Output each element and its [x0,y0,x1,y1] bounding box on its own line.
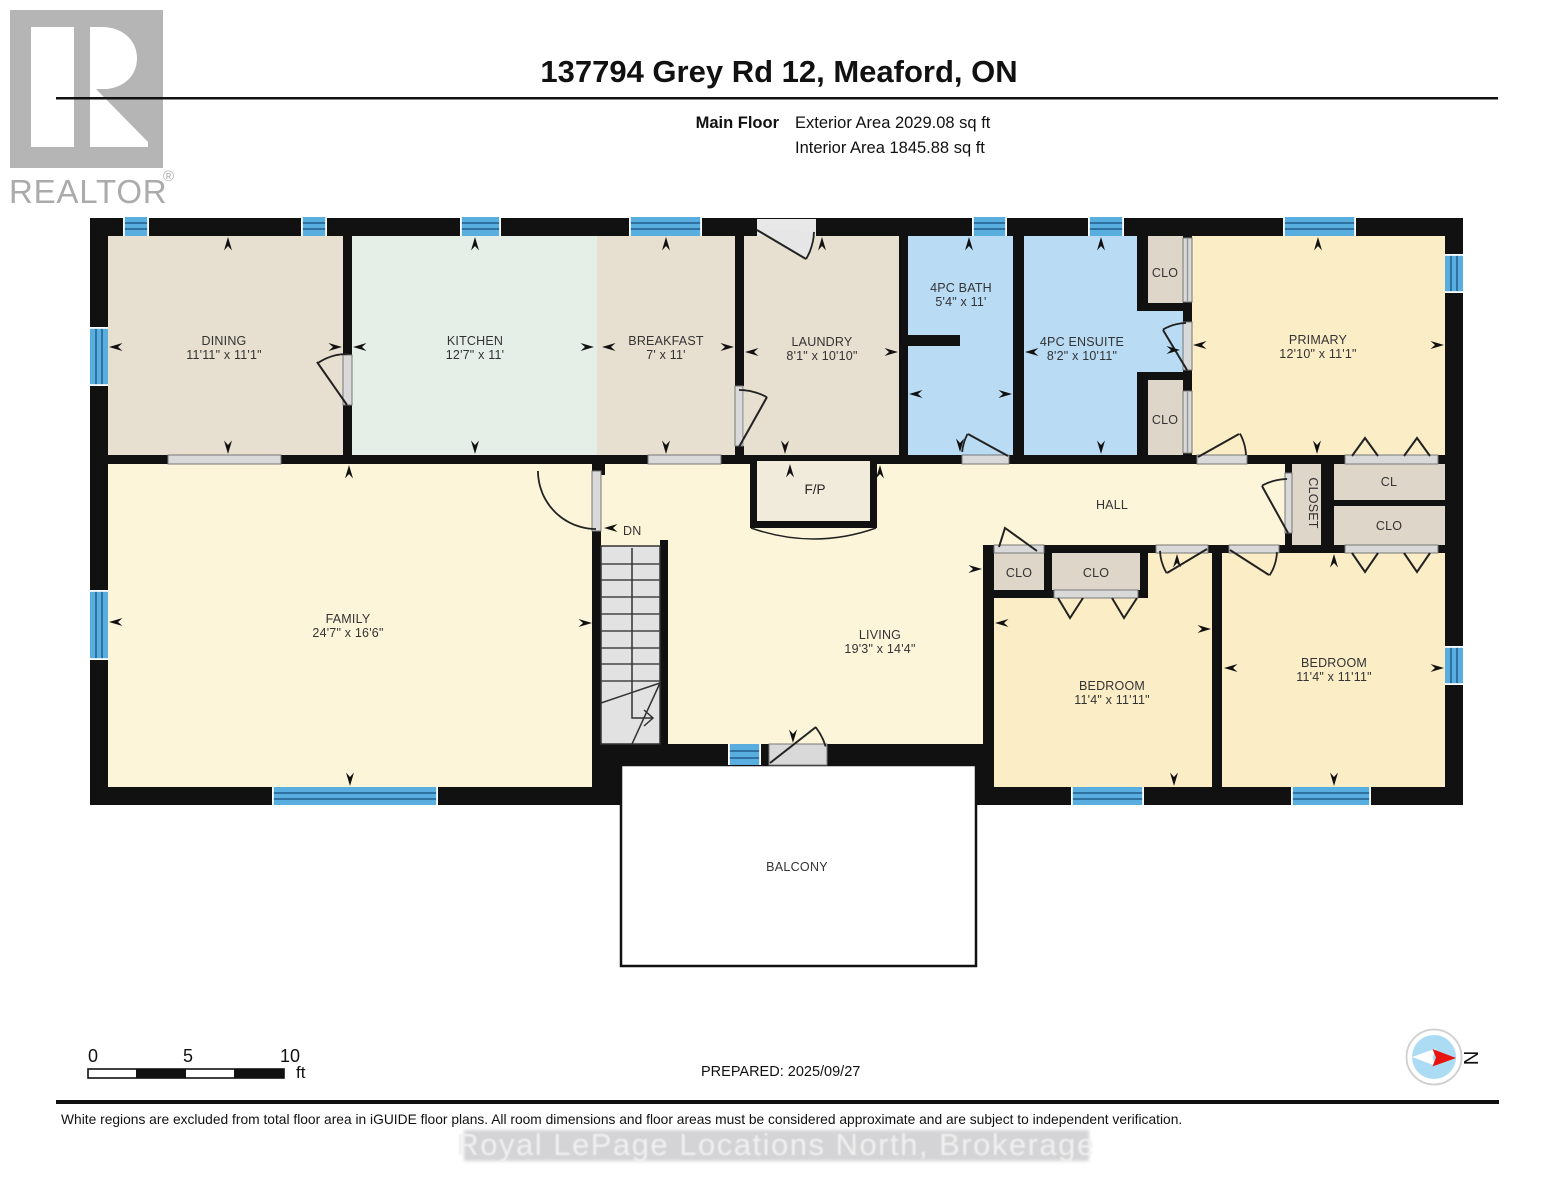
svg-text:PRIMARY: PRIMARY [1289,333,1348,347]
svg-text:CLOSET: CLOSET [1306,477,1320,528]
svg-text:FAMILY: FAMILY [326,612,371,626]
svg-text:CLO: CLO [1376,519,1402,533]
svg-text:11'11" x 11'1": 11'11" x 11'1" [186,348,262,362]
svg-text:ft: ft [296,1063,306,1082]
svg-text:7' x 11': 7' x 11' [646,348,686,362]
svg-text:HALL: HALL [1096,498,1128,512]
svg-text:Royal LePage Locations North,: Royal LePage Locations North, Brokerage [456,1127,1095,1162]
svg-text:24'7" x 16'6": 24'7" x 16'6" [312,626,383,640]
svg-text:DINING: DINING [202,334,247,348]
svg-text:8'1" x 10'10": 8'1" x 10'10" [786,349,857,363]
svg-text:LAUNDRY: LAUNDRY [792,335,853,349]
svg-text:137794 Grey Rd 12, Meaford, ON: 137794 Grey Rd 12, Meaford, ON [540,54,1017,89]
svg-text:®: ® [163,168,174,185]
svg-text:CL: CL [1381,475,1397,489]
svg-text:8'2" x 10'11": 8'2" x 10'11" [1047,349,1117,363]
svg-text:LIVING: LIVING [859,628,901,642]
svg-text:19'3" x 14'4": 19'3" x 14'4" [844,642,915,656]
svg-text:0: 0 [88,1046,98,1066]
svg-text:12'10" x 11'1": 12'10" x 11'1" [1279,347,1356,361]
svg-text:KITCHEN: KITCHEN [447,334,503,348]
svg-text:N: N [1459,1051,1481,1065]
svg-text:Exterior Area 2029.08 sq ft: Exterior Area 2029.08 sq ft [795,114,991,132]
svg-text:12'7" x 11': 12'7" x 11' [446,348,504,362]
svg-text:4PC ENSUITE: 4PC ENSUITE [1040,335,1124,349]
svg-text:Interior Area 1845.88 sq ft: Interior Area 1845.88 sq ft [795,139,985,157]
svg-text:F/P: F/P [804,482,825,497]
svg-text:11'4" x 11'11": 11'4" x 11'11" [1074,693,1150,707]
svg-text:PREPARED: 2025/09/27: PREPARED: 2025/09/27 [701,1064,860,1080]
svg-text:4PC BATH: 4PC BATH [930,281,992,295]
svg-text:5'4" x 11': 5'4" x 11' [935,295,986,309]
svg-text:REALTOR: REALTOR [9,173,167,210]
svg-text:BALCONY: BALCONY [766,860,828,874]
svg-text:CLO: CLO [1083,566,1109,580]
svg-text:CLO: CLO [1152,266,1178,280]
svg-text:DN: DN [623,524,641,538]
svg-text:CLO: CLO [1006,566,1032,580]
svg-text:CLO: CLO [1152,413,1178,427]
svg-text:BEDROOM: BEDROOM [1079,679,1145,693]
svg-text:White regions are excluded fro: White regions are excluded from total fl… [61,1112,1182,1127]
svg-text:BEDROOM: BEDROOM [1301,656,1367,670]
svg-text:5: 5 [183,1046,193,1066]
svg-text:11'4" x 11'11": 11'4" x 11'11" [1296,670,1372,684]
svg-text:BREAKFAST: BREAKFAST [628,334,704,348]
svg-text:Main Floor: Main Floor [696,114,780,132]
